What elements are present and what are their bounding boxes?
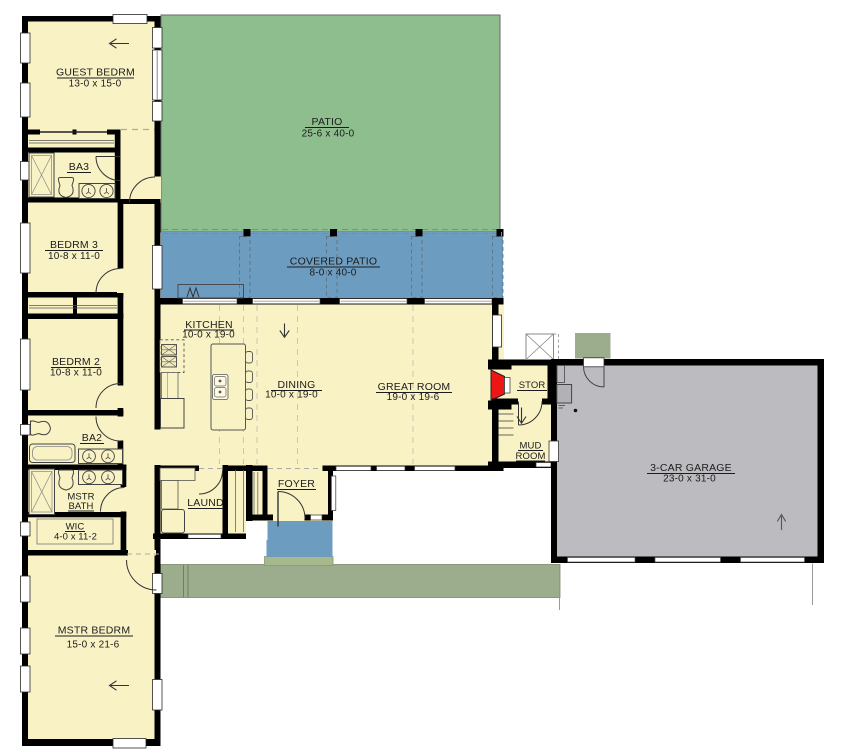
svg-text:10-0 x 19-0: 10-0 x 19-0 [265, 390, 318, 401]
svg-text:FOYER: FOYER [278, 478, 315, 490]
svg-text:8-0 x 40-0: 8-0 x 40-0 [309, 268, 356, 279]
svg-text:ROOM: ROOM [516, 451, 546, 462]
svg-text:MUD: MUD [520, 441, 542, 452]
svg-text:10-8 x 11-0: 10-8 x 11-0 [50, 368, 102, 379]
svg-text:BA3: BA3 [69, 161, 89, 173]
svg-text:25-6 x 40-0: 25-6 x 40-0 [302, 129, 355, 140]
svg-text:BEDRM 2: BEDRM 2 [52, 356, 100, 368]
svg-text:BEDRM 3: BEDRM 3 [50, 239, 98, 251]
svg-text:19-0 x 19-6: 19-0 x 19-6 [387, 392, 440, 403]
svg-text:23-0 x 31-0: 23-0 x 31-0 [663, 474, 716, 485]
svg-text:10-8 x 11-0: 10-8 x 11-0 [48, 251, 100, 262]
svg-text:GUEST BEDRM: GUEST BEDRM [56, 67, 135, 79]
svg-text:BA2: BA2 [82, 432, 102, 444]
svg-text:13-0 x 15-0: 13-0 x 15-0 [69, 79, 122, 90]
svg-text:3-CAR GARAGE: 3-CAR GARAGE [650, 462, 732, 474]
svg-text:10-0 x 19-0: 10-0 x 19-0 [182, 330, 235, 341]
svg-text:LAUND: LAUND [187, 497, 224, 509]
svg-text:PATIO: PATIO [312, 116, 343, 128]
svg-text:MSTR BEDRM: MSTR BEDRM [58, 625, 131, 637]
svg-text:COVERED PATIO: COVERED PATIO [290, 256, 377, 268]
svg-text:STOR: STOR [519, 380, 546, 391]
svg-text:15-0 x 21-6: 15-0 x 21-6 [67, 640, 120, 651]
svg-text:4-0 x 11-2: 4-0 x 11-2 [54, 532, 97, 543]
svg-text:BATH: BATH [68, 501, 93, 512]
